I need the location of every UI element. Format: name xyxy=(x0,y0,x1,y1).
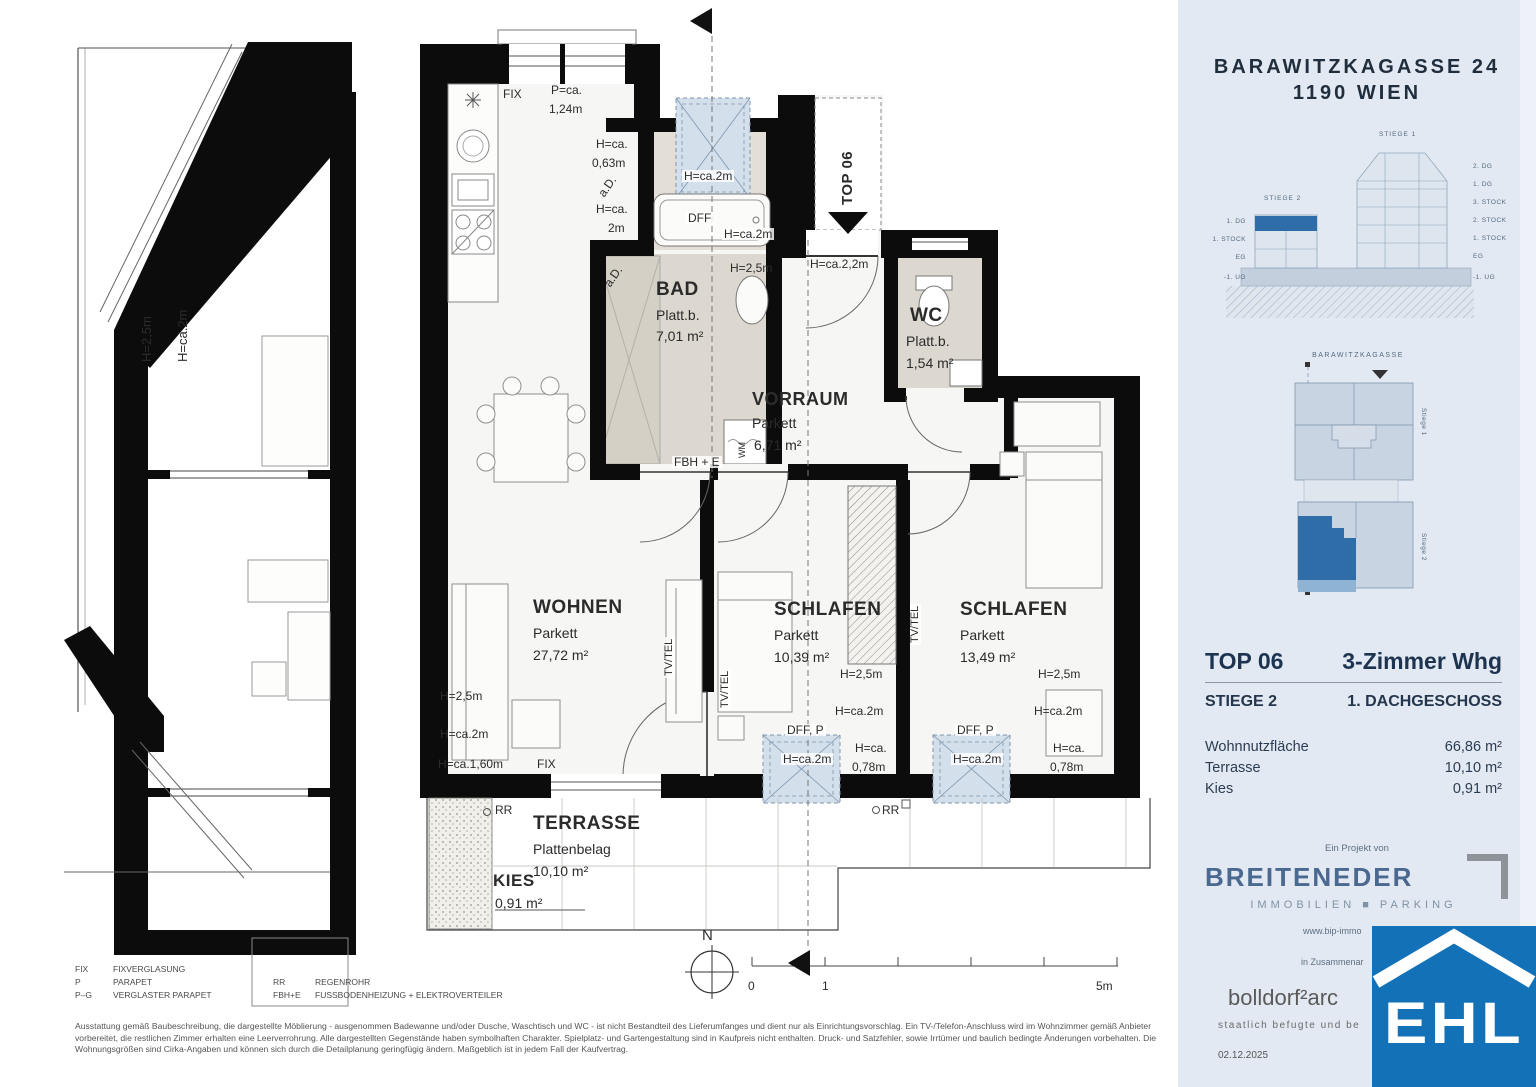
elevation-svg xyxy=(1186,128,1530,330)
legend-abbr: FIX xyxy=(75,963,113,976)
plan-label-dff-p: DFF, P xyxy=(955,724,996,736)
unit-stiege: STIEGE 2 xyxy=(1205,693,1277,711)
entrance-arrow-icon xyxy=(1372,370,1388,379)
unit-top-label: TOP 06 xyxy=(1205,648,1283,675)
info-sidebar: BARAWITZKAGASSE 24 1190 WIEN xyxy=(1178,0,1536,1087)
legend-row-fix: FIXFIXVERGLASUNG xyxy=(75,963,212,976)
plan-label-kies: KIES xyxy=(493,872,535,889)
elevation-floor-label-eg: EG xyxy=(1236,254,1246,261)
disclaimer-text: Ausstattung gemäß Baubeschreibung, die d… xyxy=(75,1021,1163,1056)
legend-desc: VERGLASTER PARAPET xyxy=(113,989,212,1002)
legend-abbr: P xyxy=(75,976,113,989)
plan-label-h-ca-2m: H=ca.2m xyxy=(440,728,488,740)
plan-label-h-2-5m: H=2,5m xyxy=(730,262,772,274)
plan-label-27-72-m: 27,72 m² xyxy=(533,648,588,662)
elevation-stiege2-label: STIEGE 2 xyxy=(1264,195,1301,202)
plan-label-h-ca-1-60m: H=ca.1,60m xyxy=(438,758,503,770)
stiege2-section xyxy=(1255,215,1317,268)
legend-abbr: FBH+E xyxy=(273,989,315,1002)
area-label: Kies xyxy=(1205,779,1233,800)
plan-label-h-ca-2m: H=ca.2m xyxy=(682,170,734,182)
ehl-text: EHL xyxy=(1369,990,1536,1057)
legend-abbr: RR xyxy=(273,976,315,989)
plan-label-rr: RR xyxy=(495,804,512,816)
plan-label-rr: RR xyxy=(882,804,899,816)
plan-label-0-78m: 0,78m xyxy=(1050,761,1083,773)
siteplan-svg xyxy=(1186,348,1530,610)
building-elevation-diagram: STIEGE 1 STIEGE 2 1. DG1. STOCKEG-1. UG2… xyxy=(1186,128,1530,330)
legend-abbr: P–G xyxy=(75,989,113,1002)
divider xyxy=(1205,682,1502,683)
plan-label-h-ca: H=ca. xyxy=(855,742,887,754)
area-row-terrasse: Terrasse10,10 m² xyxy=(1205,758,1502,779)
plan-label-schlafen: SCHLAFEN xyxy=(960,600,1067,619)
plan-label-platt-b: Platt.b. xyxy=(656,308,700,322)
area-value: 0,91 m² xyxy=(1453,779,1502,800)
plan-label-plattenbelag: Plattenbelag xyxy=(533,842,611,856)
plan-label-wc: WC xyxy=(910,306,943,325)
plan-label-h-ca-2m: H=ca.2m xyxy=(951,753,1003,765)
siteplan-street-label: BARAWITZKAGASSE xyxy=(1312,352,1404,359)
plan-label-1: 1 xyxy=(822,980,829,992)
elevation-floor-label-2-dg: 2. DG xyxy=(1473,163,1492,170)
cooperation-text: in Zusammenar xyxy=(1301,957,1364,967)
elevation-floor-label-1-dg: 1. DG xyxy=(1473,181,1492,188)
plan-date: 02.12.2025 xyxy=(1218,1050,1268,1061)
architect-logo: bolldorf²arc xyxy=(1228,985,1338,1011)
plan-label-vorraum: VORRAUM xyxy=(752,390,849,408)
plan-label-h-ca-2m: H=ca.2m xyxy=(176,310,189,362)
legend-desc: REGENROHR xyxy=(315,976,370,989)
plan-label-1-24m: 1,24m xyxy=(549,103,582,115)
elevation-floor-label-2-stock: 2. STOCK xyxy=(1473,217,1507,224)
plan-label-0: 0 xyxy=(748,980,755,992)
area-row-kies: Kies0,91 m² xyxy=(1205,779,1502,800)
legend-column-2: RRREGENROHRFBH+EFUSSBODENHEIZUNG + ELEKT… xyxy=(273,976,503,1002)
plan-label-h-ca: H=ca. xyxy=(596,203,628,215)
plan-label-tv-tel: TV/TEL xyxy=(664,637,675,678)
legend-desc: FUSSBODENHEIZUNG + ELEKTROVERTEILER xyxy=(315,989,503,1002)
plan-label-bad: BAD xyxy=(656,280,699,299)
plan-label-parkett: Parkett xyxy=(960,628,1004,642)
plan-label-10-39-m: 10,39 m² xyxy=(774,650,829,664)
plan-label-terrasse: TERRASSE xyxy=(533,814,640,833)
plan-label-0-91-m: 0,91 m² xyxy=(495,896,542,910)
ehl-roof-icon xyxy=(1372,926,1536,990)
plan-labels: FIXP=ca.1,24mH=ca.0,63ma.D.H=ca.2mH=ca.2… xyxy=(0,0,1178,1010)
elevation-floor-label-eg: EG xyxy=(1473,253,1483,260)
legend-desc: PARAPET xyxy=(113,976,152,989)
elevation-floor-label-1-stock: 1. STOCK xyxy=(1212,236,1246,243)
brand-subtitle: IMMOBILIEN ■ PARKING xyxy=(1205,899,1502,911)
address-line-2: 1190 WIEN xyxy=(1178,80,1536,106)
area-label: Wohnnutzfläche xyxy=(1205,737,1309,758)
plan-label-h-ca-2m: H=ca.2m xyxy=(781,753,833,765)
brand-website: www.bip-immo xyxy=(1303,926,1362,936)
plan-label-fix: FIX xyxy=(503,88,522,100)
plan-label-h-ca-2m: H=ca.2m xyxy=(835,705,883,717)
site-plan-diagram: BARAWITZKAGASSE Stiege 1 Stiege 2 xyxy=(1186,348,1530,610)
elevation-floor-label-3-stock: 3. STOCK xyxy=(1473,199,1507,206)
plan-label-tv-tel: TV/TEL xyxy=(910,604,921,645)
legend-row-p: PPARAPET xyxy=(75,976,212,989)
plan-label-6-71-m: 6,71 m² xyxy=(754,438,801,452)
plan-label-n: N xyxy=(702,928,713,943)
plan-label-h-ca-2m: H=ca.2m xyxy=(722,228,774,240)
plan-label-h-2-5m: H=2,5m xyxy=(1038,668,1080,680)
plan-label-h-ca: H=ca. xyxy=(596,138,628,150)
plan-label-a-d: a.D. xyxy=(596,174,618,199)
plan-label-a-d: a.D. xyxy=(602,264,624,289)
brand-name: BREITENEDER xyxy=(1205,862,1413,892)
stiege1-section xyxy=(1357,153,1447,268)
elevation-stiege1-label: STIEGE 1 xyxy=(1379,131,1416,138)
plan-label-7-01-m: 7,01 m² xyxy=(656,329,703,343)
elevation-floor-label-1-ug: -1. UG xyxy=(1473,274,1495,281)
ehl-logo: EHL xyxy=(1372,926,1536,1087)
unit-type-label: 3-Zimmer Whg xyxy=(1342,648,1502,675)
legend-row-fbh-e: FBH+EFUSSBODENHEIZUNG + ELEKTROVERTEILER xyxy=(273,989,503,1002)
elevation-floor-label-1-dg: 1. DG xyxy=(1227,218,1246,225)
plan-label-2m: 2m xyxy=(608,222,625,234)
legend-column-1: FIXFIXVERGLASUNGPPARAPETP–GVERGLASTER PA… xyxy=(75,963,212,1002)
area-value: 10,10 m² xyxy=(1445,758,1502,779)
address-line-1: BARAWITZKAGASSE 24 xyxy=(1178,54,1536,80)
plan-label-parkett: Parkett xyxy=(752,416,796,430)
plan-label-10-10-m: 10,10 m² xyxy=(533,864,588,878)
plan-label-wohnen: WOHNEN xyxy=(533,598,623,617)
siteplan-stiege2-label: Stiege 2 xyxy=(1420,533,1427,561)
elevation-floor-label-1-stock: 1. STOCK xyxy=(1473,235,1507,242)
plan-label-dff: DFF xyxy=(686,212,713,224)
plan-label-h-ca-2m: H=ca.2m xyxy=(1034,705,1082,717)
brand-corner-icon xyxy=(1467,854,1508,899)
legend-row-rr: RRREGENROHR xyxy=(273,976,503,989)
plan-label-fix: FIX xyxy=(537,758,556,770)
floorplan-sheet: FIXP=ca.1,24mH=ca.0,63ma.D.H=ca.2mH=ca.2… xyxy=(0,0,1536,1087)
plan-label-parkett: Parkett xyxy=(774,628,818,642)
plan-label-0-63m: 0,63m xyxy=(592,157,625,169)
plan-label-fbh-e: FBH + E xyxy=(672,456,722,468)
elevation-floor-label-1-ug: -1. UG xyxy=(1224,274,1246,281)
area-table: Wohnnutzfläche66,86 m²Terrasse10,10 m²Ki… xyxy=(1205,737,1502,800)
project-prefix: Ein Projekt von xyxy=(1178,843,1536,854)
plan-label-5m: 5m xyxy=(1096,980,1113,992)
architect-subtitle: staatlich befugte und be xyxy=(1218,1020,1360,1031)
plan-label-13-49-m: 13,49 m² xyxy=(960,650,1015,664)
plan-label-platt-b: Platt.b. xyxy=(906,334,950,348)
siteplan-stiege1-label: Stiege 1 xyxy=(1420,408,1427,436)
plan-label-1-54-m: 1,54 m² xyxy=(906,356,953,370)
project-address: BARAWITZKAGASSE 24 1190 WIEN xyxy=(1178,54,1536,106)
plan-label-top-06: TOP 06 xyxy=(840,151,855,205)
legend-row-p-g: P–GVERGLASTER PARAPET xyxy=(75,989,212,1002)
breiteneder-logo: BREITENEDER xyxy=(1205,862,1502,893)
plan-label-p-ca: P=ca. xyxy=(551,84,582,96)
plan-label-wm: WM xyxy=(738,442,747,458)
plan-label-h-2-5m: H=2,5m xyxy=(440,690,482,702)
plan-label-h-2-5m: H=2,5m xyxy=(140,316,153,362)
unit-floor: 1. DACHGESCHOSS xyxy=(1347,693,1502,711)
plan-label-schlafen: SCHLAFEN xyxy=(774,600,881,619)
plan-label-h-ca: H=ca. xyxy=(1053,742,1085,754)
area-value: 66,86 m² xyxy=(1445,737,1502,758)
plan-label-h-2-5m: H=2,5m xyxy=(840,668,882,680)
legend-desc: FIXVERGLASUNG xyxy=(113,963,185,976)
plan-label-tv-tel: TV/TEL xyxy=(720,669,731,710)
plan-label-0-78m: 0,78m xyxy=(852,761,885,773)
area-row-wohnnutzfl-che: Wohnnutzfläche66,86 m² xyxy=(1205,737,1502,758)
plan-label-parkett: Parkett xyxy=(533,626,577,640)
area-label: Terrasse xyxy=(1205,758,1261,779)
plan-label-dff-p: DFF, P xyxy=(785,724,826,736)
plan-label-h-ca-2-2m: H=ca.2,2m xyxy=(810,258,868,270)
